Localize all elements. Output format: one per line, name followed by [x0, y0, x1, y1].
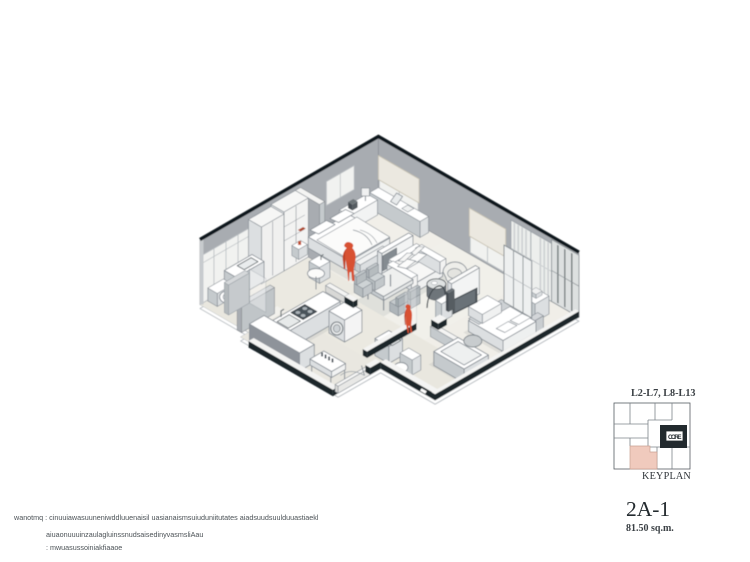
svg-text:wanotmq : cinuuiawasuuneniwddl: wanotmq : cinuuiawasuuneniwddluuenaisil …	[13, 513, 319, 522]
svg-text:KEYPLAN: KEYPLAN	[642, 471, 691, 482]
svg-text:L2-L7, L8-L13: L2-L7, L8-L13	[631, 388, 696, 399]
svg-text:CORE: CORE	[668, 434, 682, 441]
svg-text:: mwuasussoiniakfiaaoe: : mwuasussoiniakfiaaoe	[46, 543, 122, 552]
svg-text:81.50 sq.m.: 81.50 sq.m.	[626, 523, 674, 534]
svg-text:2A-1: 2A-1	[626, 497, 670, 521]
svg-text:aiuaonuuuinzaulagluinssnudsais: aiuaonuuuinzaulagluinssnudsaisedinyvasms…	[46, 530, 203, 539]
